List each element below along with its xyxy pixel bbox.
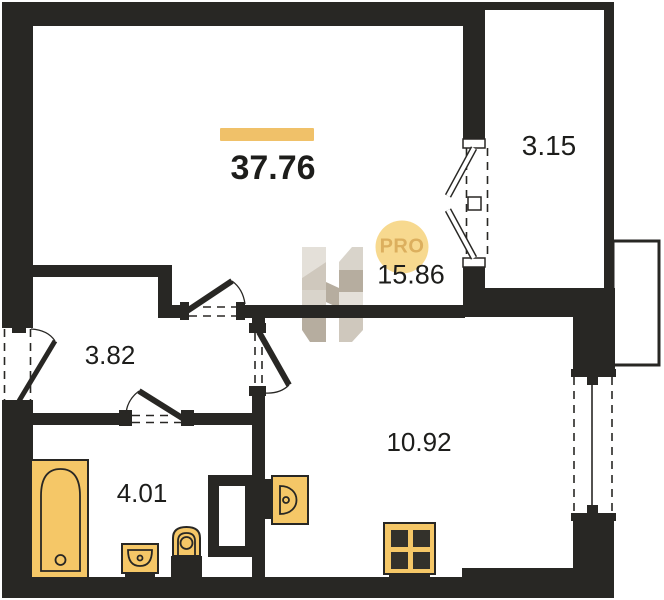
- balcony-french-door: [448, 139, 485, 267]
- floor-plan: PRO 37.76 15.86 10.92 3.82 4.01 3.15: [0, 0, 664, 600]
- room-area-label-balcony: 3.15: [522, 132, 577, 160]
- total-area-accent-bar: [220, 128, 314, 141]
- bathroom-door: [126, 391, 187, 421]
- washbasin-icon: [122, 544, 158, 580]
- kitchen-door: [259, 332, 289, 393]
- floor-plan-drawing: [0, 0, 664, 600]
- room-area-label-hallway: 3.82: [85, 342, 136, 368]
- watermark-h-logo: [302, 247, 363, 342]
- room-area-label-bathroom: 4.01: [117, 480, 168, 506]
- total-area-label: 37.76: [230, 151, 315, 185]
- adjacent-balcony-outline: [613, 241, 659, 365]
- kitchen-sink-icon: [264, 476, 308, 524]
- toilet-icon: [171, 527, 202, 577]
- room-area-label-kitchen: 10.92: [386, 429, 451, 455]
- entrance-door: [19, 329, 55, 401]
- bathtub-icon: [31, 460, 88, 578]
- pro-badge-label: PRO: [380, 236, 425, 259]
- ventilation-duct: [208, 475, 265, 557]
- stove-icon: [384, 523, 435, 579]
- room-area-label-living-room: 15.86: [377, 262, 445, 289]
